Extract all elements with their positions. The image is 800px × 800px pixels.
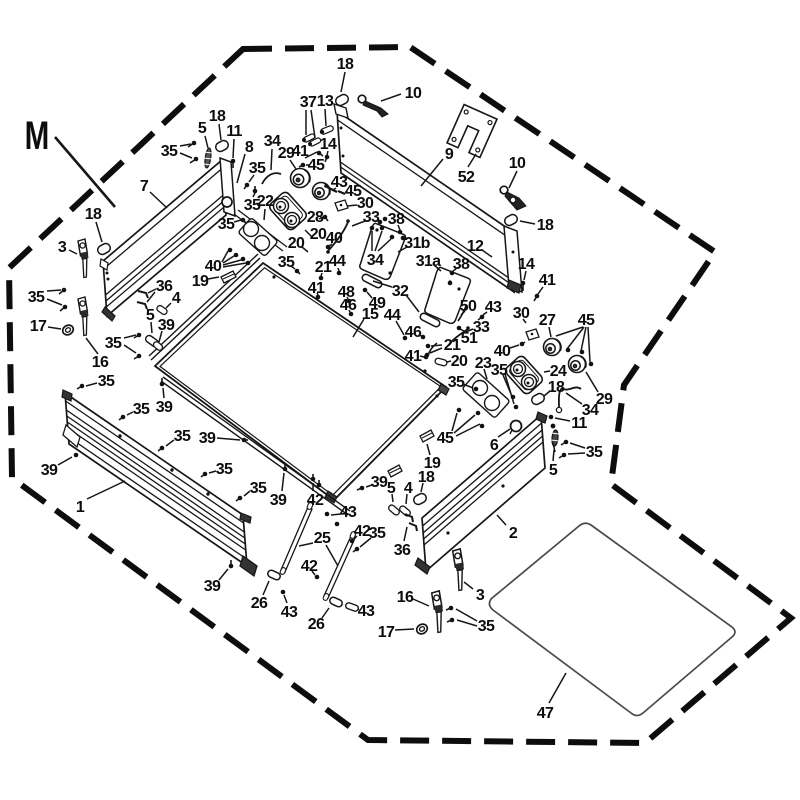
- svg-text:5: 5: [198, 120, 207, 137]
- svg-text:44: 44: [329, 253, 346, 270]
- svg-text:18: 18: [209, 108, 226, 125]
- svg-text:30: 30: [513, 305, 530, 322]
- svg-text:45: 45: [578, 312, 595, 329]
- svg-text:14: 14: [320, 136, 337, 153]
- svg-text:43: 43: [358, 603, 375, 620]
- svg-text:7: 7: [140, 178, 149, 195]
- svg-text:40: 40: [205, 258, 222, 275]
- svg-text:4: 4: [172, 290, 181, 307]
- svg-text:35: 35: [478, 618, 495, 635]
- svg-text:20: 20: [451, 353, 468, 370]
- svg-text:5: 5: [549, 462, 558, 479]
- svg-text:35: 35: [133, 401, 150, 418]
- svg-text:4: 4: [404, 480, 413, 497]
- svg-text:35: 35: [218, 216, 235, 233]
- svg-text:13: 13: [317, 93, 334, 110]
- svg-text:19: 19: [192, 273, 209, 290]
- svg-text:39: 39: [156, 399, 173, 416]
- svg-text:35: 35: [28, 289, 45, 306]
- svg-text:50: 50: [460, 298, 477, 315]
- svg-text:3: 3: [58, 239, 67, 256]
- svg-text:41: 41: [308, 280, 325, 297]
- svg-text:M: M: [25, 114, 50, 158]
- svg-text:16: 16: [397, 589, 414, 606]
- svg-text:46: 46: [405, 324, 422, 341]
- svg-text:8: 8: [245, 139, 254, 156]
- svg-text:10: 10: [509, 155, 526, 172]
- svg-text:12: 12: [467, 238, 484, 255]
- svg-text:16: 16: [92, 354, 109, 371]
- svg-text:40: 40: [494, 343, 511, 360]
- svg-text:14: 14: [518, 256, 535, 273]
- svg-text:33: 33: [363, 209, 380, 226]
- svg-text:52: 52: [458, 169, 475, 186]
- svg-text:26: 26: [251, 595, 268, 612]
- svg-text:10: 10: [405, 85, 422, 102]
- svg-text:45: 45: [437, 430, 454, 447]
- svg-text:25: 25: [314, 530, 331, 547]
- svg-text:42: 42: [307, 492, 324, 509]
- svg-text:32: 32: [392, 283, 409, 300]
- svg-text:35: 35: [278, 254, 295, 271]
- svg-text:35: 35: [250, 480, 267, 497]
- svg-text:35: 35: [244, 197, 261, 214]
- svg-text:47: 47: [537, 705, 554, 722]
- svg-text:3: 3: [476, 587, 485, 604]
- svg-text:35: 35: [98, 373, 115, 390]
- svg-text:43: 43: [485, 299, 502, 316]
- svg-text:39: 39: [158, 317, 175, 334]
- svg-text:42: 42: [301, 558, 318, 575]
- svg-text:36: 36: [394, 542, 411, 559]
- svg-text:24: 24: [550, 363, 567, 380]
- svg-text:26: 26: [308, 616, 325, 633]
- svg-text:39: 39: [270, 492, 287, 509]
- svg-text:18: 18: [418, 469, 435, 486]
- svg-text:35: 35: [448, 374, 465, 391]
- svg-text:37: 37: [300, 94, 317, 111]
- svg-text:43: 43: [281, 604, 298, 621]
- svg-text:6: 6: [490, 437, 499, 454]
- svg-text:20: 20: [310, 226, 327, 243]
- svg-text:35: 35: [105, 335, 122, 352]
- svg-text:38: 38: [388, 211, 405, 228]
- svg-text:5: 5: [146, 307, 155, 324]
- svg-text:39: 39: [371, 474, 388, 491]
- svg-text:1: 1: [76, 499, 85, 516]
- svg-text:41: 41: [539, 272, 556, 289]
- svg-text:18: 18: [85, 206, 102, 223]
- svg-text:36: 36: [156, 278, 173, 295]
- svg-text:11: 11: [226, 123, 242, 140]
- svg-text:46: 46: [340, 297, 357, 314]
- svg-text:15: 15: [362, 306, 379, 323]
- svg-text:20: 20: [288, 235, 305, 252]
- svg-text:2: 2: [509, 525, 518, 542]
- svg-text:39: 39: [199, 430, 216, 447]
- svg-text:27: 27: [539, 312, 556, 329]
- svg-text:45: 45: [308, 157, 325, 174]
- svg-text:34: 34: [367, 252, 384, 269]
- svg-text:41: 41: [405, 348, 422, 365]
- svg-text:35: 35: [249, 160, 266, 177]
- svg-text:18: 18: [548, 379, 565, 396]
- svg-text:33: 33: [473, 319, 490, 336]
- svg-text:35: 35: [216, 461, 233, 478]
- svg-text:38: 38: [453, 256, 470, 273]
- svg-text:21: 21: [444, 337, 461, 354]
- svg-text:43: 43: [340, 504, 357, 521]
- svg-text:35: 35: [174, 428, 191, 445]
- svg-text:17: 17: [30, 318, 47, 335]
- svg-text:29: 29: [596, 391, 613, 408]
- svg-text:44: 44: [384, 307, 401, 324]
- svg-text:18: 18: [537, 217, 554, 234]
- svg-text:40: 40: [326, 230, 343, 247]
- svg-text:35: 35: [161, 143, 178, 160]
- svg-text:11: 11: [571, 415, 587, 432]
- svg-text:39: 39: [204, 578, 221, 595]
- svg-text:39: 39: [41, 462, 58, 479]
- svg-text:35: 35: [586, 444, 603, 461]
- svg-text:18: 18: [337, 56, 354, 73]
- svg-text:17: 17: [378, 624, 395, 641]
- svg-text:35: 35: [369, 525, 386, 542]
- svg-text:9: 9: [445, 146, 454, 163]
- svg-text:31b: 31b: [404, 235, 430, 252]
